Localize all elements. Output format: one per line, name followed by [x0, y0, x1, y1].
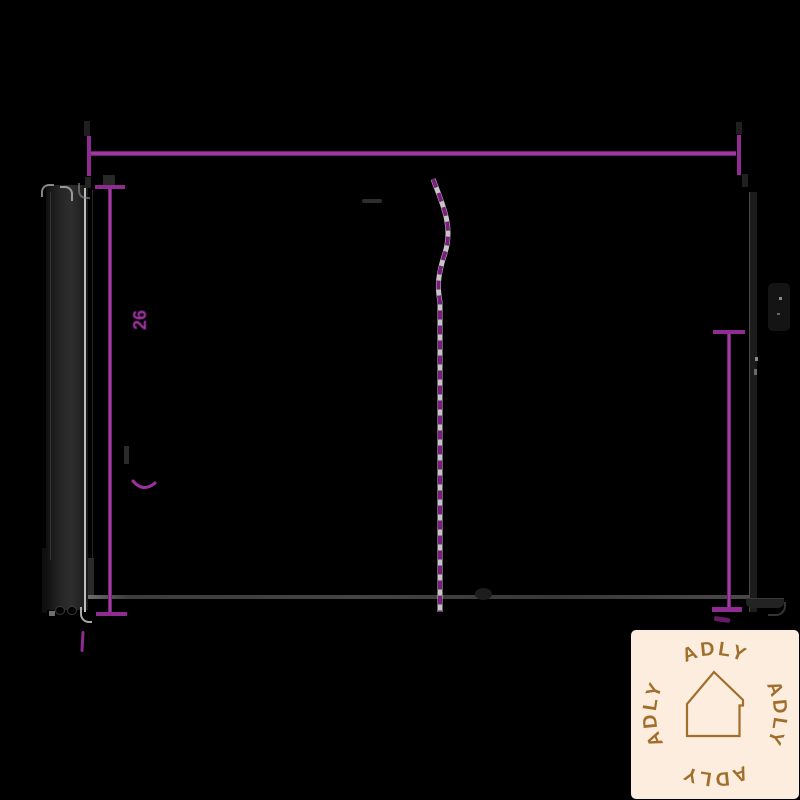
- svg-text:ADLY: ADLY: [679, 638, 751, 667]
- svg-text:ADLY: ADLY: [762, 678, 791, 750]
- house-icon: [687, 672, 743, 736]
- logo-word-right: ADLY: [762, 678, 791, 750]
- drawing-canvas: 26 ADLY ADLY ADLY ADLY: [0, 0, 800, 800]
- adly-logo-graphic: ADLY ADLY ADLY ADLY: [631, 630, 799, 799]
- logo-word-top: ADLY: [679, 638, 751, 667]
- adly-logo-badge: ADLY ADLY ADLY ADLY: [631, 630, 799, 799]
- svg-text:ADLY: ADLY: [679, 761, 751, 790]
- logo-word-bottom: ADLY: [679, 761, 751, 790]
- svg-text:ADLY: ADLY: [639, 678, 668, 750]
- logo-word-left: ADLY: [639, 678, 668, 750]
